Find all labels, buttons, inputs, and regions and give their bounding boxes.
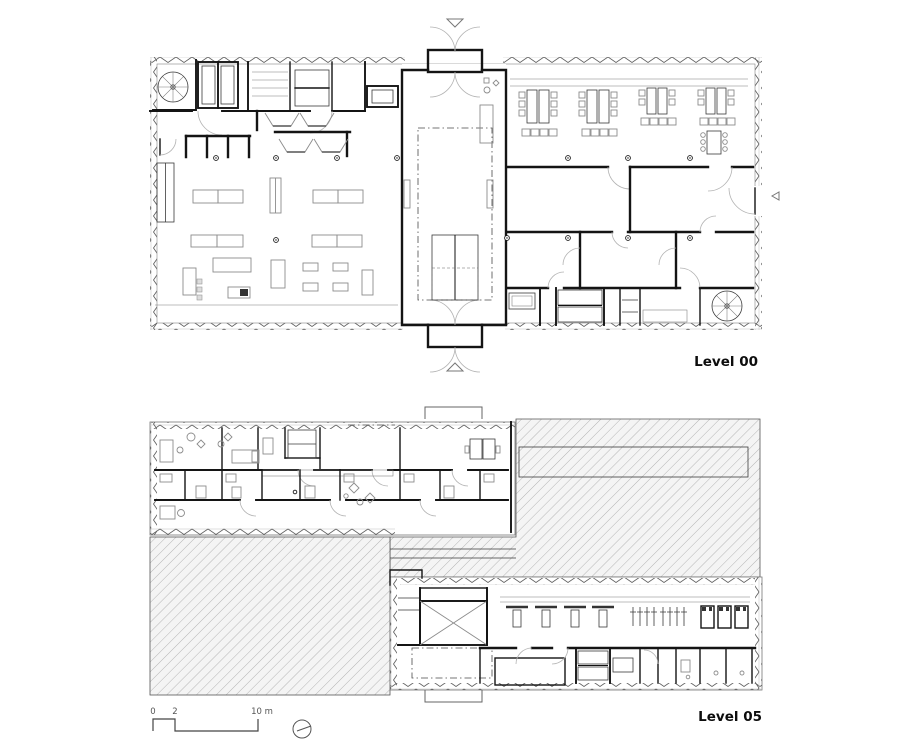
roof-hatch-sw xyxy=(150,537,390,695)
service-band-south xyxy=(508,268,753,325)
side-entrance-east xyxy=(729,186,779,216)
stair-west xyxy=(157,163,174,222)
columns-level00 xyxy=(214,156,400,243)
scale-tick-2: 2 xyxy=(172,707,177,717)
entry-marker-top xyxy=(447,19,463,27)
stair-southeast xyxy=(556,288,604,325)
east-wing-rooms xyxy=(505,156,753,288)
floor-plan-sheet: Level 00 xyxy=(0,0,907,752)
side-entry-marker xyxy=(772,192,779,200)
elevator-shafts xyxy=(198,62,238,108)
lounge-seating xyxy=(257,111,350,156)
cubicles xyxy=(160,136,250,157)
north-indicator xyxy=(293,720,311,738)
spiral-stair-se xyxy=(712,291,742,321)
central-stair-hall xyxy=(402,19,506,372)
spiral-stair-nw xyxy=(153,60,196,110)
vestibule-projection-bottom xyxy=(425,690,482,702)
scale-tick-10m: 10 m xyxy=(251,707,273,717)
upper-strip xyxy=(150,407,515,535)
level-00-plan: Level 00 xyxy=(150,19,779,372)
lower-strip xyxy=(390,570,762,702)
level-05-plan: Level 05 xyxy=(150,407,762,725)
north-service-rooms xyxy=(150,62,398,135)
entry-marker-bottom xyxy=(447,363,463,371)
columns-east xyxy=(505,156,693,241)
level-00-label: Level 00 xyxy=(694,354,758,370)
seminar-room-tables xyxy=(510,79,748,154)
scale-tick-0: 0 xyxy=(150,707,155,717)
scale-bar: 0 2 10 m xyxy=(150,707,273,731)
plan-drawing: Level 00 xyxy=(0,0,907,752)
level-05-label: Level 05 xyxy=(698,709,762,725)
vestibule-projection-top xyxy=(425,407,482,419)
